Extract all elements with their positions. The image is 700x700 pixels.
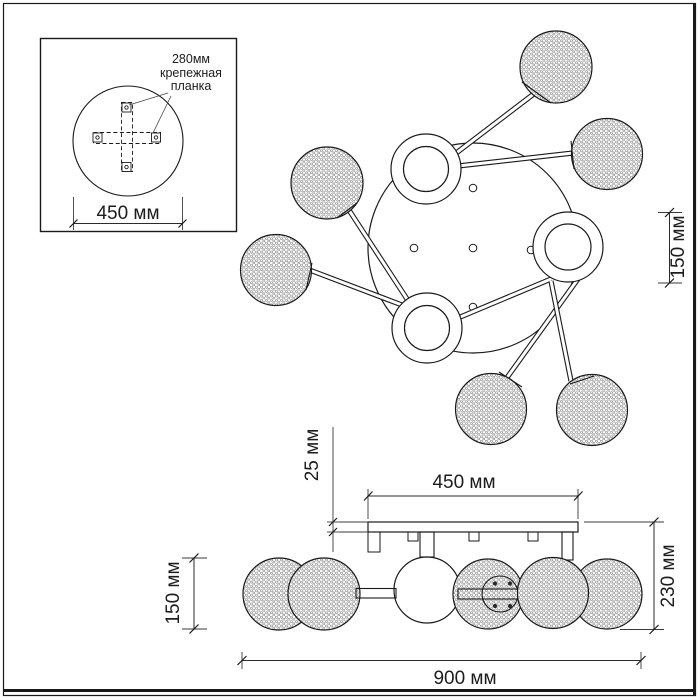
- lampshade-sphere: [456, 374, 527, 445]
- callout-line3: планка: [171, 79, 212, 93]
- bracket-pad-bottom: [122, 163, 131, 172]
- arm-rod-left: [356, 589, 396, 599]
- top-view-150-label: 150 мм: [668, 215, 689, 278]
- support-stems: [420, 532, 573, 560]
- ceiling-plate: [368, 522, 578, 532]
- side-450-label: 450 мм: [432, 472, 495, 493]
- lampshade-sphere: [557, 375, 628, 446]
- mounting-tabs: [408, 532, 538, 541]
- side-450-dimension: 450 мм: [364, 472, 583, 519]
- side-150-dimension: 150 мм: [163, 554, 207, 634]
- callout-leader-2: [153, 96, 171, 133]
- side-25-label: 25 мм: [302, 429, 323, 482]
- technical-drawing-page: 280мм крепежная планка 450 мм: [0, 0, 700, 700]
- callout-line1: 280мм: [172, 52, 210, 66]
- lampshade-sphere: [572, 119, 643, 190]
- side-25-dimension: 25 мм: [302, 427, 368, 552]
- lampshade-sphere: [241, 235, 312, 306]
- side-150-label: 150 мм: [163, 561, 184, 624]
- side-900-dimension: 900 мм: [238, 652, 646, 689]
- top-view: 150 мм: [241, 31, 690, 446]
- side-900-label: 900 мм: [433, 668, 496, 689]
- inset-mounting-panel: 280мм крепежная планка 450 мм: [41, 39, 237, 232]
- inset-diameter-dimension: 450 мм: [70, 197, 187, 230]
- bracket-pad-top: [122, 103, 131, 112]
- chandelier-dimension-drawing: 280мм крепежная планка 450 мм: [0, 0, 700, 700]
- lampshade-sphere: [520, 31, 592, 103]
- lampshade-sphere: [453, 559, 523, 629]
- callout-leader-1: [129, 93, 168, 105]
- lampshade-sphere: [288, 558, 360, 630]
- side-view: 450 мм 25 мм 150 мм: [163, 427, 679, 689]
- lampshade-sphere: [518, 558, 589, 629]
- bracket-pad-left: [93, 133, 102, 142]
- plate-end-step: [368, 532, 380, 552]
- canopy-circle: [73, 86, 183, 196]
- inset-diameter-label: 450 мм: [96, 203, 159, 224]
- mounting-bracket-cross: [93, 103, 161, 172]
- top-view-150-dimension: 150 мм: [658, 208, 689, 288]
- center-dome: [394, 557, 460, 623]
- side-230-label: 230 мм: [658, 544, 679, 607]
- bracket-callout-label: 280мм крепежная планка: [160, 52, 222, 93]
- callout-line2: крепежная: [160, 66, 222, 80]
- ball-joint-rings: [391, 134, 603, 363]
- lampshade-sphere: [291, 147, 363, 219]
- bracket-pad-right: [152, 133, 161, 142]
